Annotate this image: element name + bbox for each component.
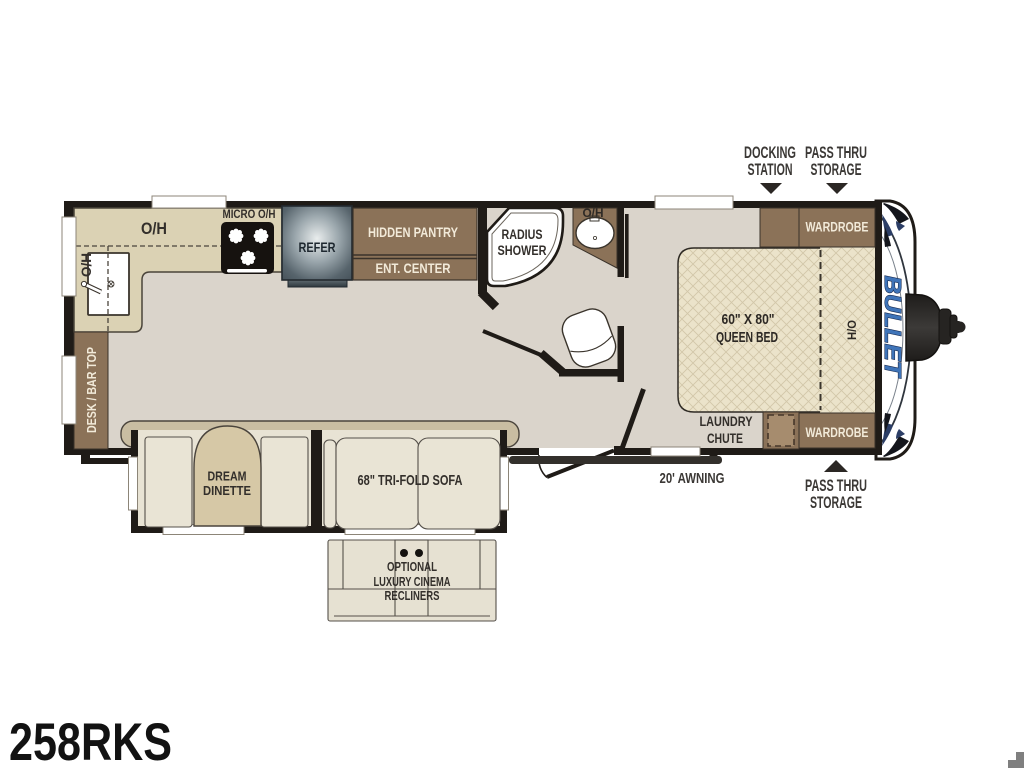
svg-text:OPTIONAL: OPTIONAL [387,560,437,574]
svg-text:20' AWNING: 20' AWNING [660,470,725,487]
svg-text:STATION: STATION [748,161,793,179]
svg-text:LAUNDRY: LAUNDRY [700,413,754,429]
svg-text:PASS THRU: PASS THRU [805,144,867,162]
svg-text:WARDROBE: WARDROBE [806,425,869,440]
svg-text:DOCKING: DOCKING [744,144,796,162]
svg-text:CHUTE: CHUTE [707,430,743,446]
svg-text:O/H: O/H [141,219,167,238]
svg-text:BULLET: BULLET [880,276,906,379]
svg-text:DINETTE: DINETTE [203,483,251,498]
svg-text:ENT. CENTER: ENT. CENTER [376,260,451,276]
svg-text:DREAM: DREAM [208,469,247,484]
svg-text:STORAGE: STORAGE [811,161,862,179]
svg-text:LUXURY CINEMA: LUXURY CINEMA [374,575,451,589]
svg-text:O/H: O/H [78,253,94,277]
svg-text:MICRO O/H: MICRO O/H [223,207,276,221]
svg-text:H/O: H/O [845,320,859,340]
svg-text:QUEEN BED: QUEEN BED [716,329,778,346]
svg-text:SHOWER: SHOWER [498,243,547,258]
svg-text:WARDROBE: WARDROBE [806,220,869,235]
svg-text:STORAGE: STORAGE [810,494,862,512]
svg-text:DESK / BAR TOP: DESK / BAR TOP [85,347,99,433]
svg-text:HIDDEN PANTRY: HIDDEN PANTRY [368,224,459,240]
svg-text:RADIUS: RADIUS [502,227,543,242]
svg-text:RECLINERS: RECLINERS [385,589,440,603]
svg-text:PASS THRU: PASS THRU [805,477,867,495]
svg-text:60" X 80": 60" X 80" [722,311,775,328]
svg-text:258RKS: 258RKS [9,713,172,768]
svg-text:68" TRI-FOLD SOFA: 68" TRI-FOLD SOFA [358,472,463,489]
svg-text:REFER: REFER [299,239,336,255]
